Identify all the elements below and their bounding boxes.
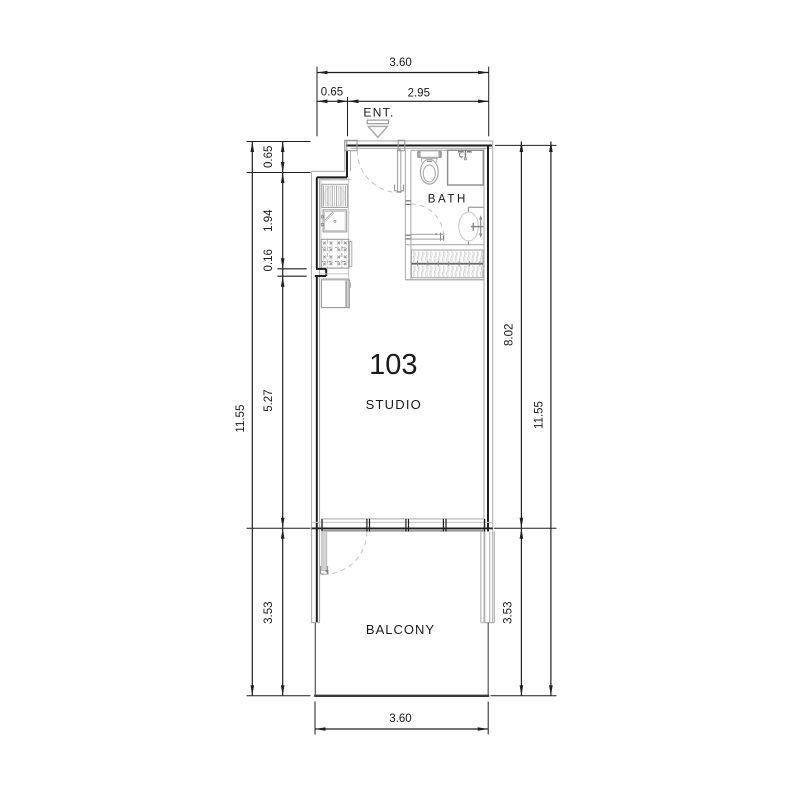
svg-text:3.53: 3.53 [263,602,275,624]
svg-text:8.02: 8.02 [503,324,515,346]
svg-text:3.53: 3.53 [503,602,515,624]
svg-text:1.94: 1.94 [263,209,275,232]
svg-text:2.95: 2.95 [408,87,430,99]
svg-text:ENT.: ENT. [363,105,394,119]
svg-text:3.60: 3.60 [389,57,411,69]
svg-text:0.65: 0.65 [321,87,343,99]
svg-text:11.55: 11.55 [235,405,247,433]
svg-text:3.60: 3.60 [389,713,411,725]
svg-text:0.16: 0.16 [263,249,275,271]
svg-text:STUDIO: STUDIO [366,397,422,412]
svg-text:103: 103 [369,349,417,381]
svg-text:BATH: BATH [428,193,468,205]
svg-text:5.27: 5.27 [263,389,275,411]
svg-text:11.55: 11.55 [533,401,545,429]
svg-text:0.65: 0.65 [263,146,275,168]
svg-text:BALCONY: BALCONY [366,622,435,637]
